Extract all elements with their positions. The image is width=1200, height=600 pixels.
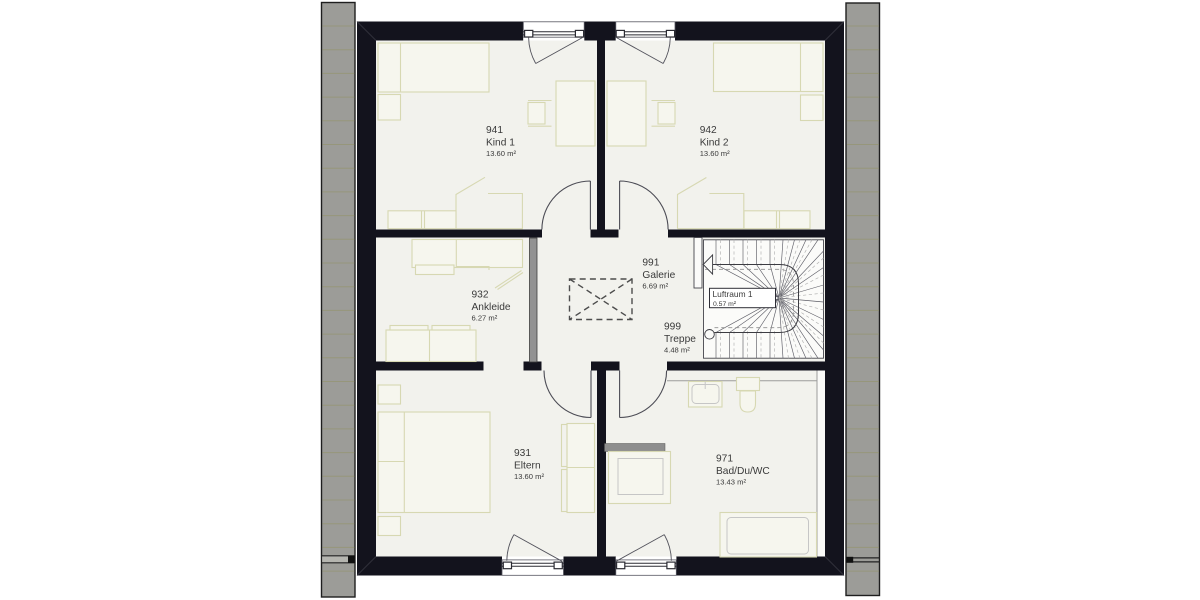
svg-text:Ankleide: Ankleide [472, 302, 511, 313]
svg-text:991: 991 [642, 258, 659, 269]
svg-text:4.48 m²: 4.48 m² [664, 346, 690, 355]
svg-text:13.60 m²: 13.60 m² [486, 149, 516, 158]
svg-text:931: 931 [514, 448, 531, 459]
svg-text:13.60 m²: 13.60 m² [700, 149, 730, 158]
svg-text:6.69 m²: 6.69 m² [642, 282, 668, 291]
svg-text:Kind 2: Kind 2 [700, 137, 729, 148]
svg-text:Eltern: Eltern [514, 460, 541, 471]
svg-text:Kind 1: Kind 1 [486, 137, 515, 148]
svg-text:13.43 m²: 13.43 m² [716, 478, 746, 487]
svg-text:Luftraum 1: Luftraum 1 [713, 289, 753, 299]
svg-text:Galerie: Galerie [642, 270, 675, 281]
svg-text:932: 932 [472, 290, 489, 301]
svg-text:971: 971 [716, 454, 733, 465]
svg-text:0.57 m²: 0.57 m² [713, 301, 737, 308]
svg-text:Bad/Du/WC: Bad/Du/WC [716, 466, 770, 477]
svg-text:941: 941 [486, 125, 503, 136]
svg-text:Treppe: Treppe [664, 334, 696, 345]
svg-text:999: 999 [664, 322, 681, 333]
svg-text:13.60 m²: 13.60 m² [514, 472, 544, 481]
svg-text:942: 942 [700, 125, 717, 136]
svg-text:6.27 m²: 6.27 m² [472, 314, 498, 323]
